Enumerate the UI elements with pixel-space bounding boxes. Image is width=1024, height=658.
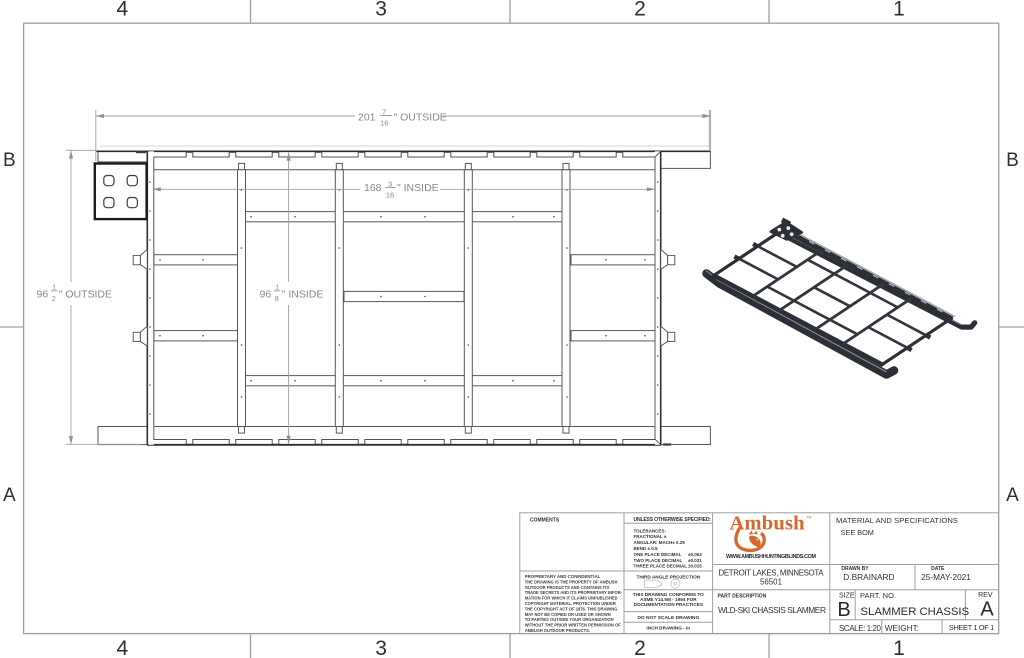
svg-text:ANGULAR: MACH± 0.25: ANGULAR: MACH± 0.25 <box>634 540 686 545</box>
svg-text:1: 1 <box>52 283 56 292</box>
svg-text:SCALE: 1:20: SCALE: 1:20 <box>839 624 882 633</box>
svg-text:1: 1 <box>893 637 905 658</box>
svg-text:TO PARTIES OUTSIDE YOUR ORGANI: TO PARTIES OUTSIDE YOUR ORGANIZATION <box>525 617 614 622</box>
svg-text:" INSIDE: " INSIDE <box>282 289 324 301</box>
svg-text:D.BRAINARD: D.BRAINARD <box>843 572 894 582</box>
svg-text:" INSIDE: " INSIDE <box>397 182 439 194</box>
svg-text:3: 3 <box>388 179 392 188</box>
svg-text:AMBUSH OUTDOOR PRODUCTS.: AMBUSH OUTDOOR PRODUCTS. <box>525 628 590 633</box>
svg-text:B: B <box>1006 150 1019 171</box>
svg-text:1: 1 <box>275 283 279 292</box>
svg-text:" OUTSIDE: " OUTSIDE <box>59 289 112 301</box>
svg-text:" OUTSIDE: " OUTSIDE <box>394 111 447 123</box>
svg-text:UNLESS OTHERWISE SPECIFIED:: UNLESS OTHERWISE SPECIFIED: <box>634 517 712 523</box>
svg-text:56501: 56501 <box>760 577 782 586</box>
svg-text:THIRD ANGLE PROJECTION: THIRD ANGLE PROJECTION <box>636 574 700 579</box>
svg-text:A: A <box>980 598 994 620</box>
svg-text:3: 3 <box>375 637 387 658</box>
svg-text:8: 8 <box>275 294 279 303</box>
svg-text:B: B <box>837 599 850 621</box>
svg-text:A: A <box>1006 485 1019 506</box>
svg-text:TWO PLACE DECIMAL: TWO PLACE DECIMAL <box>634 558 683 563</box>
svg-text:INCH DRAWING - In: INCH DRAWING - In <box>646 625 690 630</box>
svg-text:1: 1 <box>893 0 905 21</box>
svg-text:BEND ± 0.5: BEND ± 0.5 <box>634 546 658 551</box>
svg-text:PROPRIETARY AND CONFIDENTIAL: PROPRIETARY AND CONFIDENTIAL <box>525 574 601 579</box>
svg-text:A: A <box>3 485 16 506</box>
svg-text:WLD-SKI CHASSIS SLAMMER: WLD-SKI CHASSIS SLAMMER <box>718 605 826 615</box>
svg-text:THE DRAWING IS THE PROPERTY OF: THE DRAWING IS THE PROPERTY OF AMBUSH <box>525 579 618 584</box>
svg-text:COMMENTS: COMMENTS <box>530 517 560 523</box>
svg-text:OUTDOOR PRODUCTS AND CONTAINS: OUTDOOR PRODUCTS AND CONTAINS ITS <box>525 585 610 590</box>
svg-text:THREE PLACE DECIMAL: THREE PLACE DECIMAL <box>634 564 688 569</box>
svg-text:SHEET 1 OF 1: SHEET 1 OF 1 <box>949 623 995 632</box>
svg-text:±0.063: ±0.063 <box>688 552 702 557</box>
svg-text:DO NOT SCALE DRAWING: DO NOT SCALE DRAWING <box>637 615 699 621</box>
svg-text:7: 7 <box>382 107 386 116</box>
svg-text:TOLERANCES:: TOLERANCES: <box>634 528 667 533</box>
svg-text:PART DESCRIPTION: PART DESCRIPTION <box>718 594 767 600</box>
svg-text:FRACTIONAL ±: FRACTIONAL ± <box>634 534 667 539</box>
svg-text:WITHOUT THE PRIOR WRITTEN PERM: WITHOUT THE PRIOR WRITTEN PERMISSION OF <box>525 623 621 628</box>
svg-text:DOCUMENTATION PRACTICES: DOCUMENTATION PRACTICES <box>634 602 703 607</box>
svg-text:SLAMMER CHASSIS: SLAMMER CHASSIS <box>861 606 970 618</box>
svg-text:2: 2 <box>634 637 646 658</box>
svg-text:168: 168 <box>364 182 382 194</box>
svg-text:DETROIT LAKES, MINNESOTA: DETROIT LAKES, MINNESOTA <box>719 569 825 578</box>
svg-text:±0.031: ±0.031 <box>688 558 702 563</box>
svg-text:96: 96 <box>260 289 272 301</box>
svg-text:MAY NOT BE COPIED OR USED OR S: MAY NOT BE COPIED OR USED OR SHOWN <box>525 612 611 617</box>
svg-text:25-MAY-2021: 25-MAY-2021 <box>921 572 971 582</box>
svg-text:THE COPYRIGHT ACT OF 1976. THI: THE COPYRIGHT ACT OF 1976. THIS DRAWING <box>525 606 618 611</box>
svg-text:WEIGHT:: WEIGHT: <box>885 624 919 633</box>
svg-text:Ambush: Ambush <box>730 513 806 535</box>
svg-text:SEE BOM: SEE BOM <box>841 528 874 537</box>
svg-text:2: 2 <box>634 0 646 21</box>
svg-text:TRADE SECRETS AND ITS PROPRIET: TRADE SECRETS AND ITS PROPRIETARY INFOR- <box>525 590 623 595</box>
svg-text:96: 96 <box>37 289 49 301</box>
svg-text:±0.015: ±0.015 <box>688 564 702 569</box>
svg-text:16: 16 <box>380 119 388 128</box>
svg-text:MATION FOR WHICH IT CLAIMS UNP: MATION FOR WHICH IT CLAIMS UNPUBLISHED <box>525 596 618 601</box>
svg-text:PART. NO.: PART. NO. <box>860 591 896 600</box>
svg-text:ONE PLACE DECIMAL: ONE PLACE DECIMAL <box>634 552 682 557</box>
svg-text:4: 4 <box>116 637 128 658</box>
svg-text:TM: TM <box>806 516 811 520</box>
svg-text:201: 201 <box>358 111 376 123</box>
svg-text:16: 16 <box>386 191 394 200</box>
svg-text:3: 3 <box>375 0 387 21</box>
svg-text:WWW.AMBUSHHUNTINGBLINDS.COM: WWW.AMBUSHHUNTINGBLINDS.COM <box>726 554 817 560</box>
svg-text:B: B <box>3 150 16 171</box>
svg-text:COPYRIGHT MATERIAL. PROTECTION: COPYRIGHT MATERIAL. PROTECTION UNDER <box>525 601 616 606</box>
svg-text:4: 4 <box>116 0 128 21</box>
svg-text:2: 2 <box>52 294 56 303</box>
svg-text:MATERIAL AND SPECIFICATIONS: MATERIAL AND SPECIFICATIONS <box>836 516 958 525</box>
